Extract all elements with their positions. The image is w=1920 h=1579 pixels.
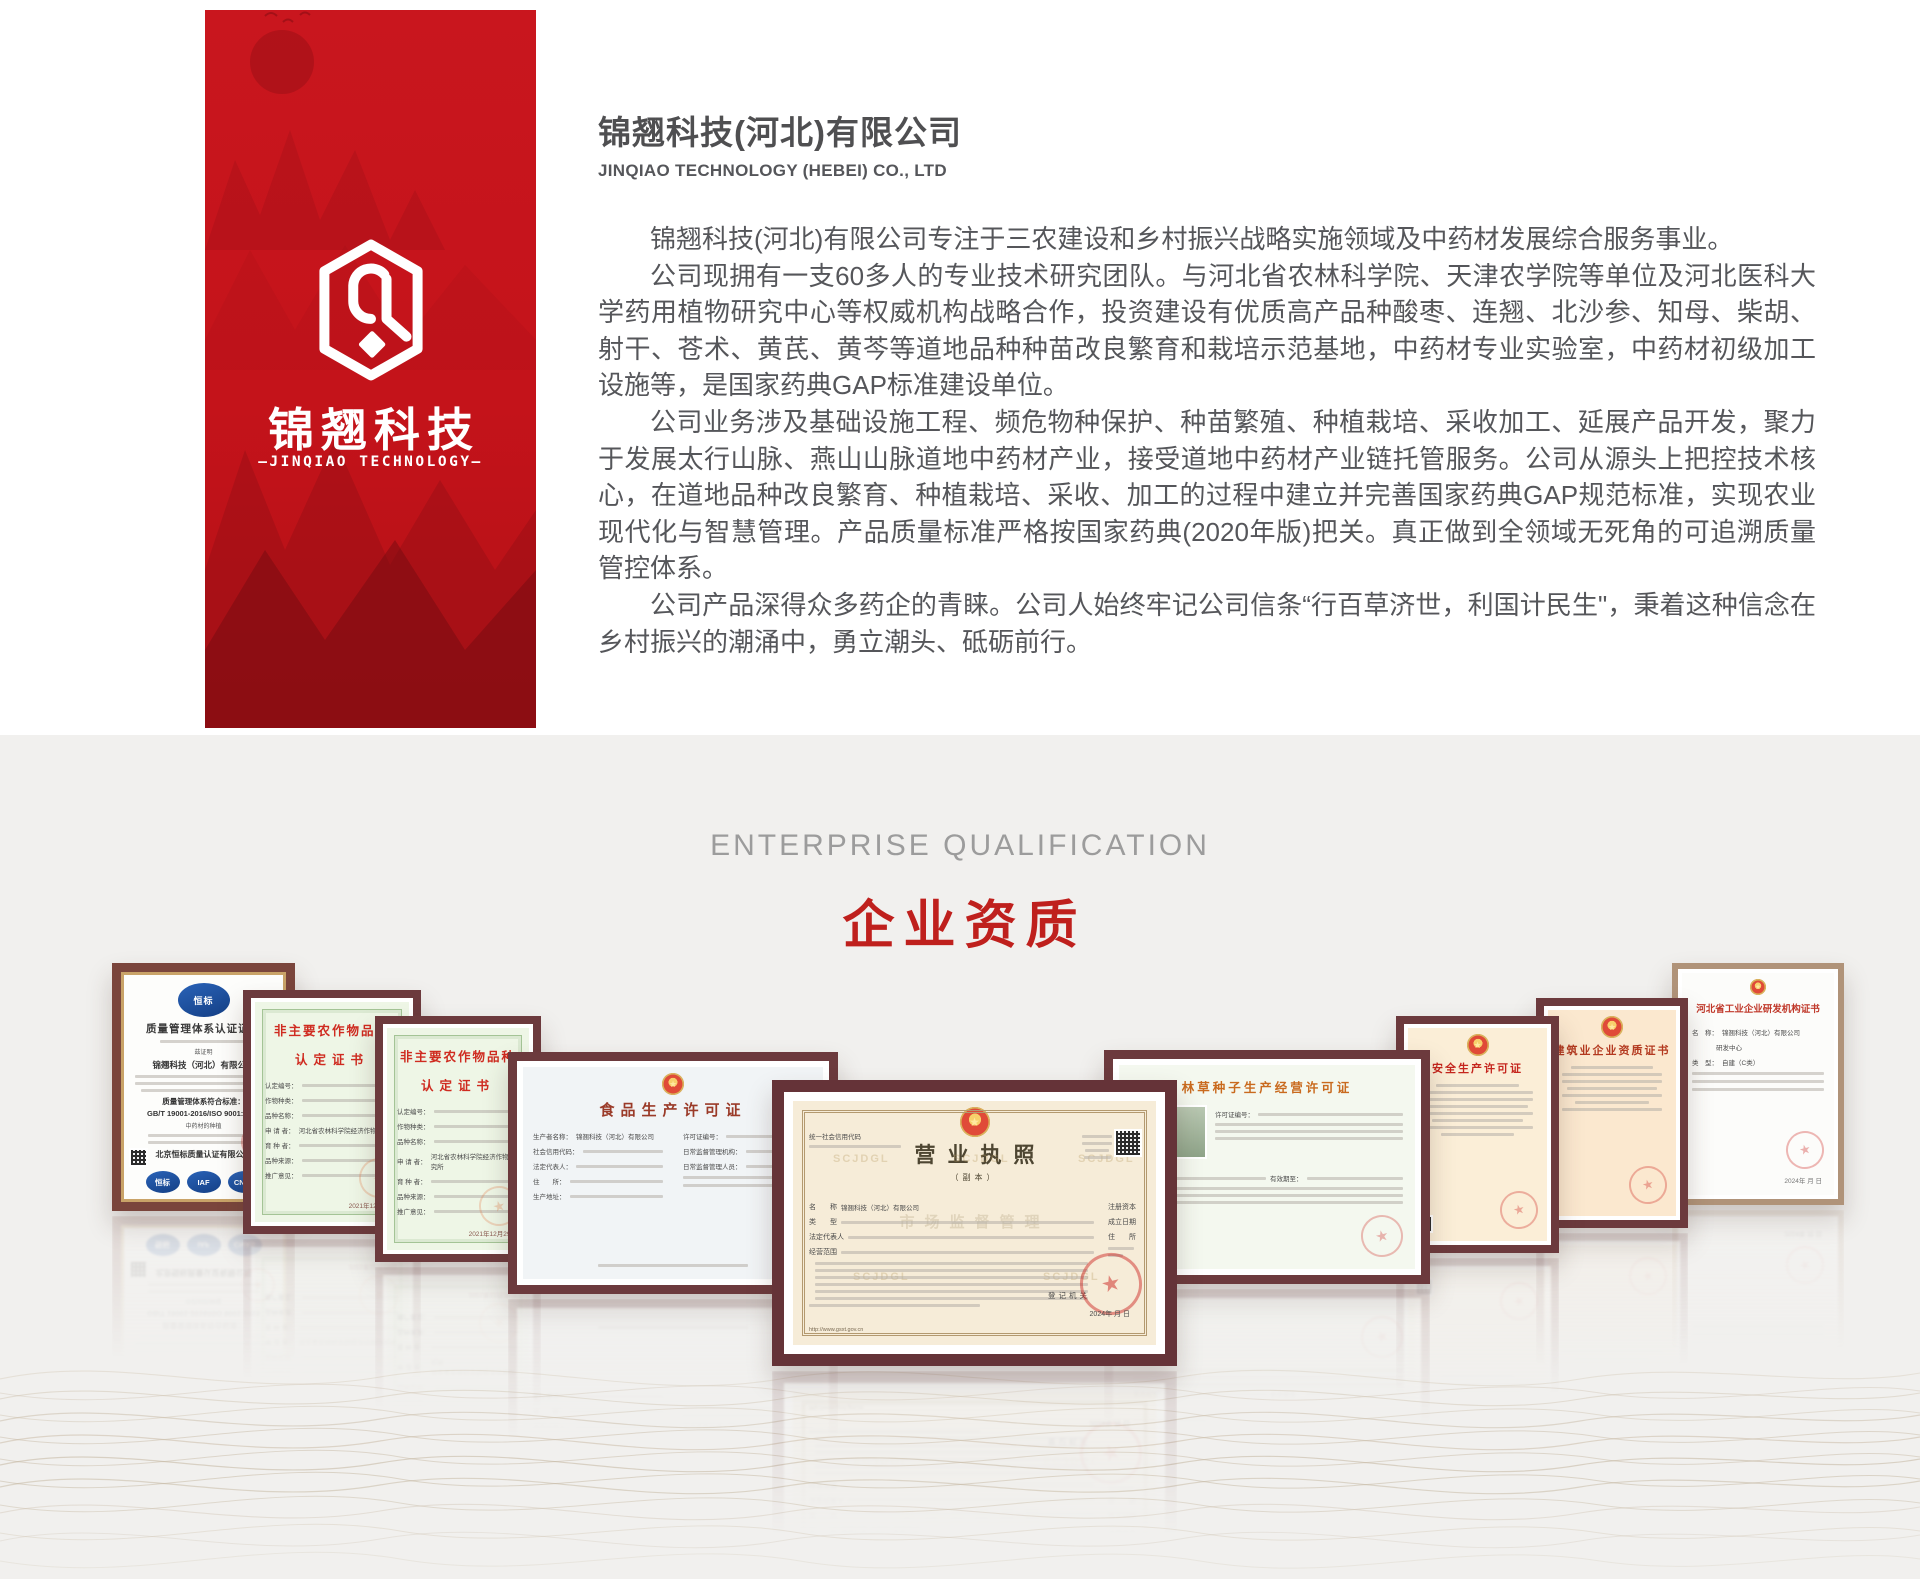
official-seal-icon: ★	[355, 1271, 403, 1319]
wave-pattern-decoration	[0, 1339, 1920, 1579]
official-seal-icon: ★	[1357, 1211, 1408, 1262]
certificate-business-license[interactable]: SCJDGL SCJDGL SCJDGL SCJDGL SCJDGL 市场监督管…	[772, 1080, 1177, 1366]
accreditation-badges: 恒标 IAF CNAS	[124, 1234, 283, 1256]
standard-number: GB/T 19001-2016/ISO 9001:2015	[124, 1309, 283, 1318]
logo-wordmark-en: —JINQIAO TECHNOLOGY—	[205, 454, 536, 470]
iaf-badge-icon: IAF	[187, 1234, 221, 1256]
company-profile-page: 锦翘科技 —JINQIAO TECHNOLOGY— 锦翘科技(河北)有限公司 J…	[0, 0, 1920, 1579]
watermark: SCJDGL	[953, 1153, 1010, 1165]
logo-wordmark: 锦翘科技	[205, 394, 536, 460]
paragraph: 公司现拥有一支60多人的专业技术研究团队。与河北省农林科学院、天津农学院等单位及…	[598, 258, 1816, 404]
standard-heading: 质量管理体系符合标准：	[124, 1320, 283, 1331]
certificate-rd-institution[interactable]: ★ 河北省工业企业研发机构证书 名 称：锦翘科技（河北）有限公司 研发中心 类 …	[1672, 963, 1844, 1205]
company-intro: 锦翘科技(河北)有限公司 JINQIAO TECHNOLOGY (HEBEI) …	[598, 106, 1816, 660]
paragraph: 锦翘科技(河北)有限公司专注于三农建设和乡村振兴战略实施领域及中药材发展综合服务…	[598, 221, 1816, 258]
official-seal-icon: ★	[1496, 1187, 1542, 1233]
certificate-date: 2024年 月 日	[1784, 1230, 1822, 1240]
official-seal-icon: ★	[1782, 1127, 1828, 1173]
cnas-badge-icon: CNAS	[228, 1234, 262, 1256]
official-seal-icon: ★	[237, 1264, 278, 1305]
official-seal-icon: ★	[1496, 1278, 1542, 1324]
section-title-zh: 企业资质	[0, 883, 1920, 958]
paragraph: 公司业务涉及基础设施工程、频危物种保护、种苗繁殖、种植栽培、采收加工、延展产品开…	[598, 404, 1816, 587]
issuer-name: 北京恒标质量认证有限公司	[124, 1267, 283, 1278]
license-date: 2024年 月 日	[1090, 1309, 1130, 1319]
hengbiao-badge-icon: 恒标	[146, 1171, 180, 1193]
qr-code	[131, 1150, 146, 1165]
hengbiao-badge-icon: 恒标	[146, 1234, 180, 1256]
certificate-title: 建筑业企业资质证书	[1548, 1042, 1676, 1058]
paragraph: 公司产品深得众多药企的青睐。公司人始终牢记公司信条“行百草济世，利国计民生"，秉…	[598, 587, 1816, 660]
official-seal-icon: ★	[1625, 1162, 1671, 1208]
qr-caption	[1082, 1131, 1112, 1163]
company-description: 锦翘科技(河北)有限公司专注于三农建设和乡村振兴战略实施领域及中药材发展综合服务…	[598, 221, 1816, 660]
gsxt-url: http://www.gsxt.gov.cn	[809, 1327, 863, 1333]
certificate-fields: 名 称：锦翘科技（河北）有限公司 研发中心 类 型：自建（C类）	[1682, 1027, 1834, 1091]
enterprise-qualification-section: ENTERPRISE QUALIFICATION 企业资质 恒标 质量管理体系认…	[0, 735, 1920, 1579]
iaf-badge-icon: IAF	[187, 1171, 221, 1193]
jinqiao-logo-icon	[315, 239, 427, 381]
certificate-title: 河北省工业企业研发机构证书	[1690, 1003, 1826, 1017]
national-emblem-icon: ★	[662, 1073, 684, 1095]
hengbiao-logo-icon: 恒标	[178, 983, 230, 1017]
qr-code	[131, 1262, 146, 1277]
official-seal-icon: ★	[1625, 1253, 1671, 1299]
certificate-scope: 中药材的种植	[124, 1297, 283, 1306]
national-emblem-icon: ★	[1601, 1016, 1623, 1038]
official-seal-icon: ★	[1782, 1242, 1828, 1288]
certificate-date: 2024年 月 日	[1784, 1175, 1822, 1185]
page-subtitle: JINQIAO TECHNOLOGY (HEBEI) CO., LTD	[598, 161, 1816, 181]
qr-code	[1116, 1131, 1140, 1155]
national-emblem-icon: ★	[1750, 979, 1766, 995]
watermark: SCJDGL	[833, 1153, 890, 1165]
national-emblem-icon: ★	[1467, 1034, 1489, 1056]
credit-code-block: 统一社会信用代码	[809, 1131, 901, 1152]
certificate-fields: 许可证编号：	[1215, 1105, 1403, 1144]
section-title-en: ENTERPRISE QUALIFICATION	[0, 829, 1920, 863]
brand-banner: 锦翘科技 —JINQIAO TECHNOLOGY—	[205, 10, 536, 728]
page-title: 锦翘科技(河北)有限公司	[598, 106, 1816, 154]
certificate-date: 2021年12月29日	[349, 1263, 397, 1273]
